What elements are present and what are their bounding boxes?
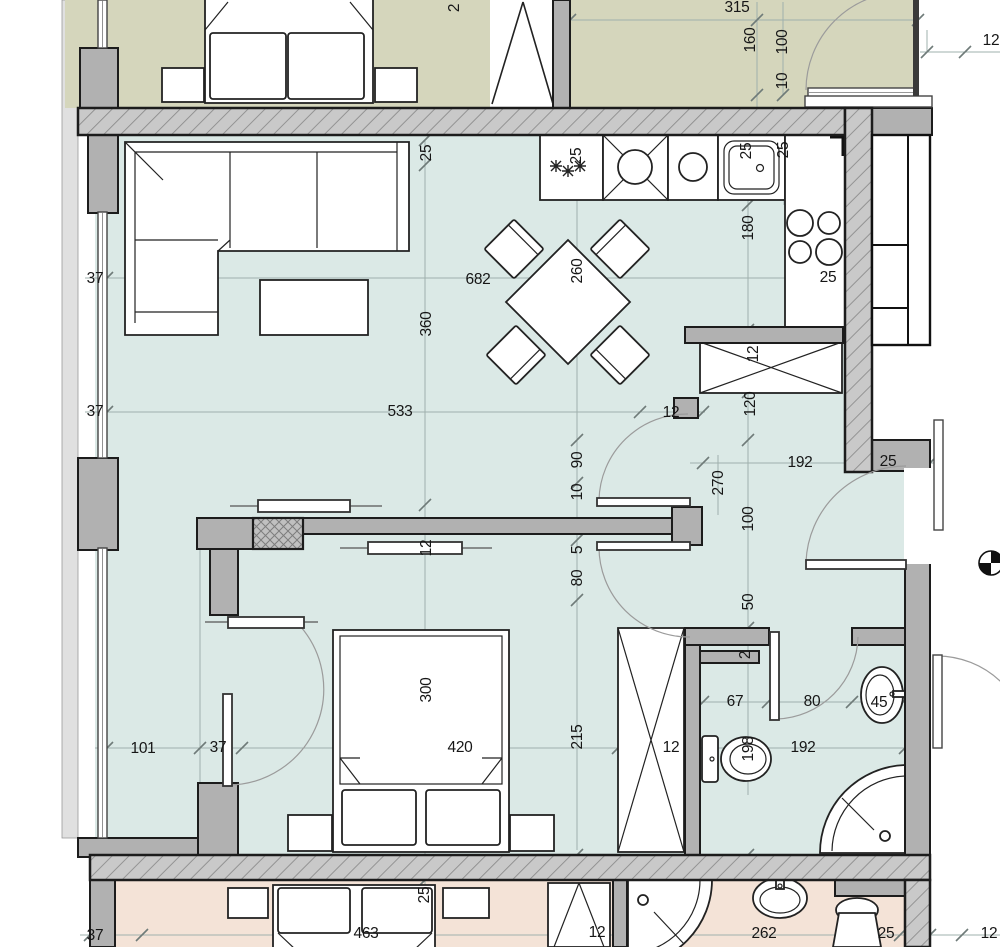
- nightstand-icon: [375, 68, 417, 102]
- pillow: [210, 33, 286, 99]
- party-wall-edge: [913, 0, 919, 96]
- pillow: [362, 888, 432, 933]
- toilet-icon: [702, 736, 771, 782]
- snowflake-icon: [574, 160, 586, 172]
- snowflake-icon: [562, 165, 574, 177]
- shaft-icon: [872, 135, 930, 345]
- top-exterior-wall: [78, 108, 845, 135]
- pillow: [278, 888, 350, 933]
- lower-right-wall: [905, 880, 930, 947]
- lower-door-panel: [548, 883, 610, 947]
- floor-plan-canvas: 2315160100101225252525180376822602536012…: [0, 0, 1000, 947]
- pillow: [426, 790, 500, 845]
- nightstand-icon: [228, 888, 268, 918]
- crosshatch-wall: [253, 518, 303, 549]
- sliding-door-icon: [228, 617, 304, 628]
- washbasin-icon: [753, 877, 807, 918]
- pillow: [342, 790, 416, 845]
- kitchen-sink-icon: [603, 135, 668, 200]
- wardrobe-icon: [618, 628, 684, 852]
- sink-basin-icon: [718, 135, 785, 200]
- bottom-exterior-wall: [90, 855, 930, 880]
- facade-strip: [62, 0, 78, 838]
- door-opening: [904, 468, 932, 564]
- door-leaf: [933, 655, 942, 748]
- door-leaf: [223, 694, 232, 786]
- door-leaf: [597, 542, 690, 550]
- upper-door-gap: [490, 0, 553, 108]
- wardrobe-icon: [700, 342, 842, 393]
- neighbor-door: [933, 655, 1000, 748]
- sill: [805, 96, 932, 107]
- floor-plan-drawing: [0, 0, 1000, 947]
- door-swing-arc-icon: [937, 656, 1000, 748]
- coffee-table-icon: [260, 280, 368, 335]
- dining-set: [484, 219, 649, 384]
- nightstand-icon: [510, 815, 554, 851]
- door-leaf: [597, 498, 690, 506]
- door-leaf: [806, 560, 906, 569]
- snowflake-icon: [550, 160, 562, 172]
- section-marker-icon: [979, 551, 1000, 575]
- appliance-circle: [668, 135, 718, 200]
- nightstand-icon: [443, 888, 489, 918]
- door-leaf: [770, 632, 779, 720]
- nightstand-icon: [288, 815, 332, 851]
- right-exterior-wall: [845, 108, 872, 472]
- pillow: [288, 33, 364, 99]
- nightstand-icon: [162, 68, 204, 102]
